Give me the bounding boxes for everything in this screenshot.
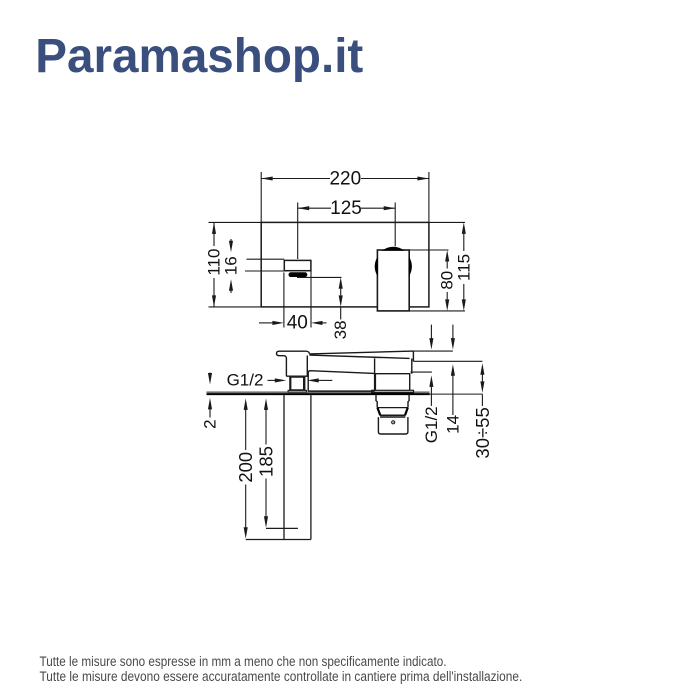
svg-text:30÷55: 30÷55 (472, 407, 493, 458)
svg-text:Tutte le misure devono essere: Tutte le misure devono essere accuratame… (40, 669, 523, 684)
svg-text:125: 125 (330, 198, 362, 219)
svg-text:115: 115 (454, 254, 473, 281)
svg-text:2: 2 (201, 419, 220, 428)
svg-text:185: 185 (256, 446, 277, 477)
svg-text:40: 40 (287, 313, 308, 334)
svg-text:200: 200 (235, 452, 256, 483)
svg-text:Paramashop.it: Paramashop.it (35, 29, 363, 83)
svg-text:16: 16 (222, 256, 241, 275)
svg-text:G1/2: G1/2 (227, 371, 264, 390)
svg-text:220: 220 (329, 168, 361, 189)
svg-text:Tutte le misure sono espresse: Tutte le misure sono espresse in mm a me… (40, 654, 447, 669)
svg-text:38: 38 (331, 320, 350, 339)
svg-text:14: 14 (443, 415, 462, 434)
svg-text:G1/2: G1/2 (422, 406, 441, 443)
